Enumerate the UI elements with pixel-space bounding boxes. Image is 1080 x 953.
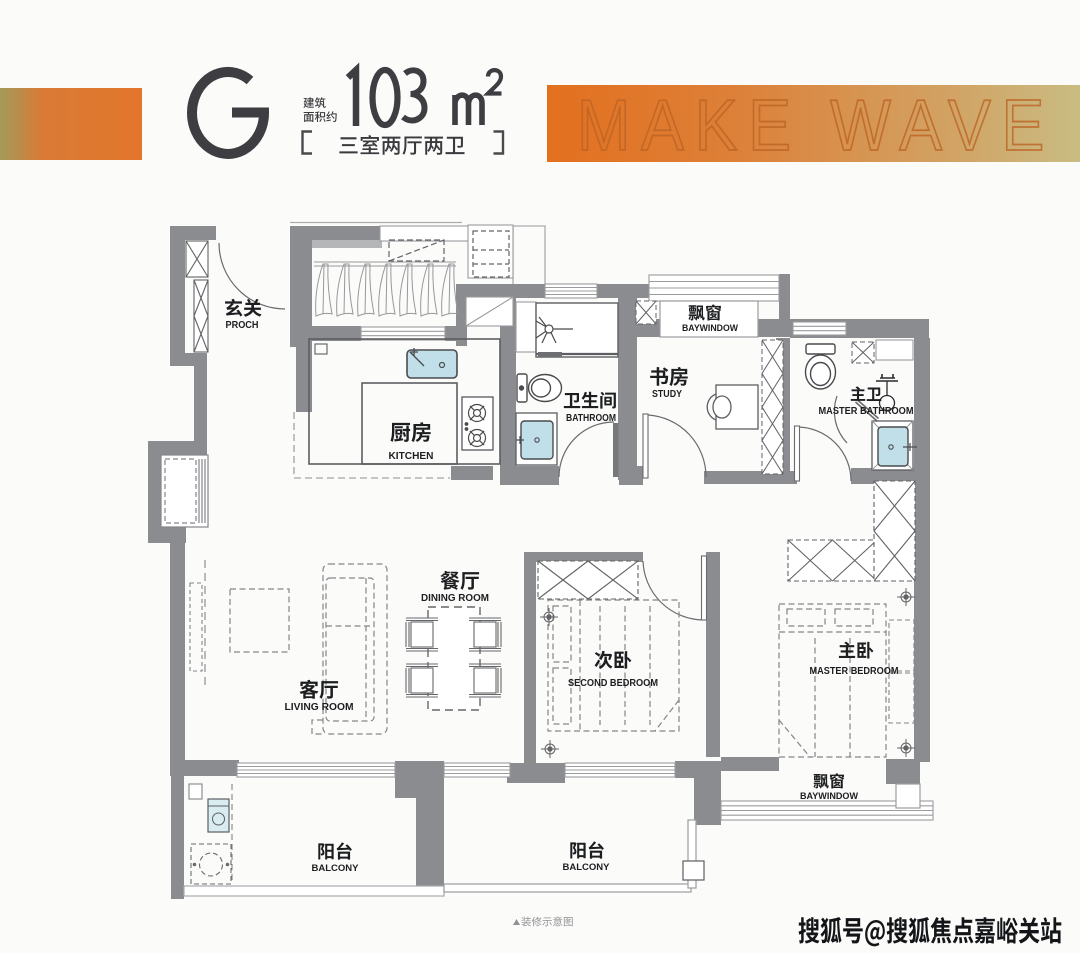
svg-text:MAKE WAVE: MAKE WAVE	[577, 86, 1055, 166]
svg-text:BALCONY: BALCONY	[563, 862, 611, 873]
svg-text:SECOND BEDROOM: SECOND BEDROOM	[568, 678, 658, 689]
svg-text:BAYWINDOW: BAYWINDOW	[800, 791, 859, 801]
svg-text:BATHROOM: BATHROOM	[566, 413, 616, 424]
svg-text:STUDY: STUDY	[652, 389, 682, 400]
svg-text:LIVING ROOM: LIVING ROOM	[285, 701, 354, 713]
svg-text:MASTER BEDROOM: MASTER BEDROOM	[810, 666, 899, 677]
svg-text:BALCONY: BALCONY	[312, 863, 360, 874]
svg-text:MASTER BATHROOM: MASTER BATHROOM	[819, 406, 914, 417]
svg-text:DINING ROOM: DINING ROOM	[421, 592, 489, 604]
svg-text:BAYWINDOW: BAYWINDOW	[682, 323, 738, 333]
svg-text:PROCH: PROCH	[226, 320, 259, 331]
svg-text:KITCHEN: KITCHEN	[389, 450, 434, 462]
